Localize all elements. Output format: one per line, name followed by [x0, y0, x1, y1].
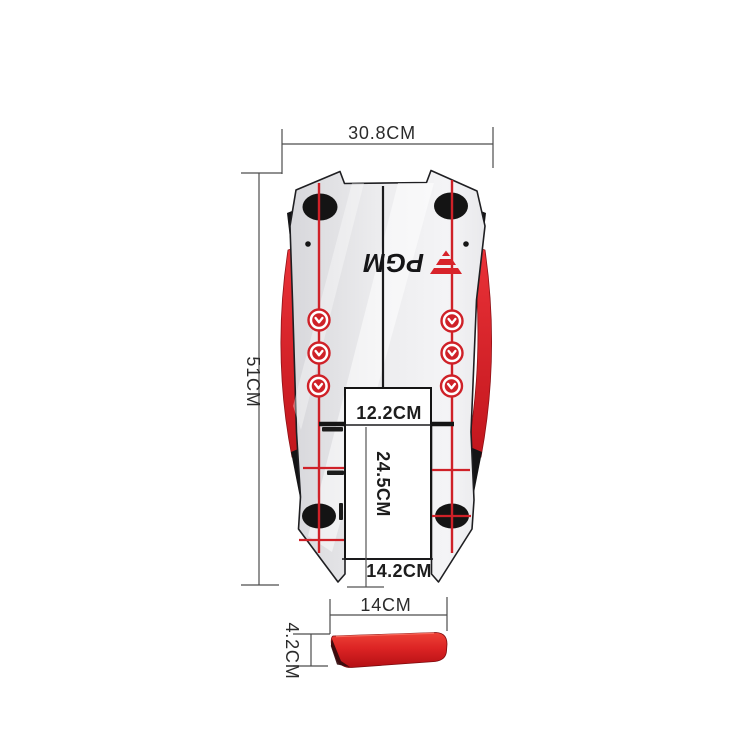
bar-height-dimension: 4.2CM [282, 622, 330, 679]
chevron-down-circle-icon [442, 311, 463, 332]
diagram-canvas: PGM 12.2CM 24.5CM 14.2CM 30.8CM 51CM 14C… [0, 0, 750, 750]
brand-logo: PGM [362, 248, 462, 278]
slot-length-label: 24.5CM [373, 451, 393, 516]
slot-width-label: 12.2CM [356, 403, 421, 423]
overall-width-dimension: 30.8CM [282, 123, 493, 174]
overall-length-label: 51CM [243, 356, 263, 407]
overall-width-label: 30.8CM [348, 123, 416, 143]
bar-length-dimension: 14CM [330, 595, 447, 634]
chevron-down-circle-icon [309, 310, 330, 331]
bottom-gap-width-label: 14.2CM [366, 561, 431, 581]
slot-dimension-overlay: 12.2CM 24.5CM 14.2CM [342, 388, 433, 587]
left-dot [305, 241, 311, 247]
chevron-down-circle-icon [309, 343, 330, 364]
bar-length-label: 14CM [360, 595, 411, 615]
red-bar [331, 633, 447, 668]
overall-length-dimension: 51CM [241, 173, 282, 585]
red-bar-part [331, 633, 447, 668]
brand-logo-text: PGM [362, 248, 424, 278]
right-dot [463, 241, 469, 247]
product-dimension-diagram: PGM 12.2CM 24.5CM 14.2CM 30.8CM 51CM 14C… [0, 0, 750, 750]
chevron-down-circle-icon [441, 376, 462, 397]
chevron-down-circle-icon [308, 376, 329, 397]
chevron-down-circle-icon [442, 343, 463, 364]
bar-height-label: 4.2CM [282, 622, 302, 679]
